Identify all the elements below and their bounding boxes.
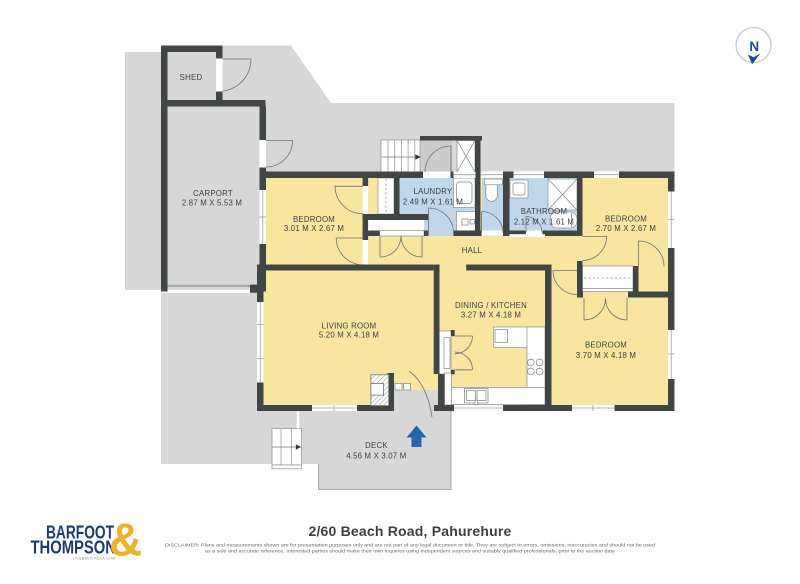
- svg-text:3.01 M X 2.67 M: 3.01 M X 2.67 M: [284, 224, 344, 233]
- svg-text:3.70 M X 4.18 M: 3.70 M X 4.18 M: [576, 351, 636, 360]
- svg-text:THOMPSON: THOMPSON: [31, 538, 117, 558]
- svg-text:DISCLAIMER: Plans and measurem: DISCLAIMER: Plans and measurements shown…: [165, 543, 655, 549]
- svg-text:CARPORT: CARPORT: [193, 189, 233, 198]
- svg-text:4.56 M X 3.07 M: 4.56 M X 3.07 M: [346, 451, 406, 460]
- svg-text:BEDROOM: BEDROOM: [585, 341, 627, 350]
- svg-text:2.70 M X 2.67 M: 2.70 M X 2.67 M: [596, 224, 656, 233]
- svg-text:LICENSED REAA 2008: LICENSED REAA 2008: [73, 557, 116, 561]
- svg-text:2.87 M X 5.53 M: 2.87 M X 5.53 M: [182, 199, 242, 208]
- svg-text:LIVING ROOM: LIVING ROOM: [322, 322, 377, 331]
- svg-text:DECK: DECK: [365, 441, 388, 450]
- svg-text:HALL: HALL: [462, 246, 483, 255]
- svg-text:2.12 M X 1.61 M: 2.12 M X 1.61 M: [514, 218, 574, 227]
- svg-text:2.49 M X 1.61 M: 2.49 M X 1.61 M: [403, 198, 463, 207]
- svg-text:BEDROOM: BEDROOM: [293, 215, 335, 224]
- svg-text:BATHROOM: BATHROOM: [521, 207, 567, 216]
- svg-text:DINING / KITCHEN: DINING / KITCHEN: [455, 301, 527, 310]
- svg-text:2/60 Beach Road, Pahurehure: 2/60 Beach Road, Pahurehure: [308, 523, 511, 539]
- svg-text:N: N: [749, 39, 759, 54]
- svg-text:SHED: SHED: [180, 73, 203, 82]
- svg-text:as a sole and accurate referen: as a sole and accurate reference. Intere…: [205, 549, 615, 555]
- svg-text:BEDROOM: BEDROOM: [605, 215, 647, 224]
- svg-text:5.20 M X 4.18 M: 5.20 M X 4.18 M: [319, 331, 379, 340]
- svg-text:LAUNDRY: LAUNDRY: [414, 187, 453, 196]
- svg-text:3.27 M X 4.18 M: 3.27 M X 4.18 M: [461, 311, 521, 320]
